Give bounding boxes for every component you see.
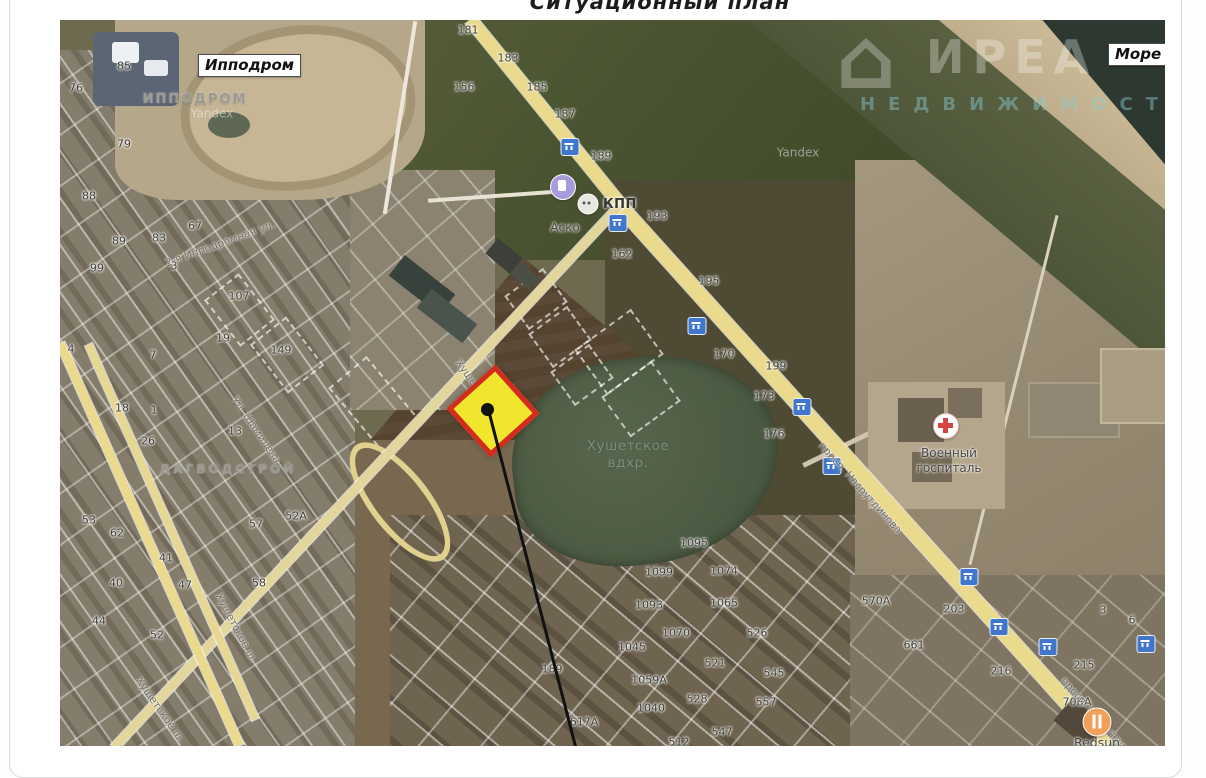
house-number: 216 (991, 665, 1012, 678)
house-number: 1059А (631, 674, 667, 687)
house-number: 215 (1074, 659, 1095, 672)
place-label: Военный госпиталь (917, 446, 982, 476)
route-shield-icon (1137, 635, 1156, 653)
house-number: 545 (764, 667, 785, 680)
route-shield-icon (1039, 638, 1058, 656)
house-number: 547 (712, 726, 733, 739)
house-number: 1065 (710, 597, 738, 610)
house-number: 4 (68, 343, 75, 356)
page-title: Ситуационный план (350, 0, 970, 14)
house-number: 44 (92, 615, 106, 628)
hospital-building-2 (948, 388, 982, 418)
street-name-label: 2-я Ипподромная ул. (164, 219, 277, 270)
house-number: 187 (555, 108, 576, 121)
house-number: 76 (69, 82, 83, 95)
house-number: 79 (117, 138, 131, 151)
house-number: 40 (109, 577, 123, 590)
restaurant-icon (1083, 708, 1112, 737)
house-number: 1099 (645, 566, 673, 579)
place-label: ДАГВОДСТРОЙ (160, 463, 297, 478)
house-number: 189 (591, 150, 612, 163)
house-number: 570А (862, 595, 891, 608)
house-number: 162 (612, 248, 633, 261)
house-number: 199 (766, 360, 787, 373)
house-number: 1040 (637, 702, 665, 715)
house-number: 89 (112, 235, 126, 248)
house-number: 617А (570, 716, 599, 729)
place-label: КПП (603, 197, 637, 213)
house-number: 1074 (710, 565, 738, 578)
house-number: 13 (228, 425, 242, 438)
house-number: 6 (1129, 614, 1136, 627)
plot-center-dot (481, 403, 494, 416)
house-number: 1095 (680, 537, 708, 550)
place-label: Хушетское вдхр. (587, 438, 669, 472)
route-shield-icon (609, 214, 628, 232)
house-number: 47 (178, 579, 192, 592)
house-number: 3 (1100, 604, 1107, 617)
house-number: 193 (647, 210, 668, 223)
house-number: 181 (458, 24, 479, 37)
route-shield-icon (990, 618, 1009, 636)
hospital-cross-icon (933, 413, 959, 439)
stadium-roof-2 (144, 60, 168, 76)
house-number: 176 (764, 428, 785, 441)
house-number: 107 (229, 290, 250, 303)
house-number: 149 (271, 344, 292, 357)
compound-walled (1100, 348, 1165, 424)
fuel-station-icon (550, 174, 576, 200)
house-number: 41 (159, 552, 173, 565)
house-number: 7 (150, 349, 157, 362)
situational-plan-map[interactable]: 1811831561851871891931621951701991731768… (60, 20, 1165, 746)
house-number: 83 (152, 232, 166, 245)
house-number: 62 (110, 527, 124, 540)
house-number: 26 (141, 435, 155, 448)
house-number: 1 (151, 404, 158, 417)
place-label: Yandex (191, 107, 234, 122)
house-number: 156 (454, 81, 475, 94)
house-number: 557 (756, 696, 777, 709)
place-label: Redsun (1074, 735, 1120, 746)
route-shield-icon (960, 568, 979, 586)
street-name-label: Хушетское ш. (133, 675, 187, 745)
house-number: 85 (117, 60, 131, 73)
house-number: 528 (687, 693, 708, 706)
house-number: 173 (754, 390, 775, 403)
house-number: 203 (944, 603, 965, 616)
house-number: 526 (747, 627, 768, 640)
house-number: 19 (216, 332, 230, 345)
place-label: Yandex (777, 146, 820, 161)
house-number: 195 (699, 275, 720, 288)
route-shield-icon (561, 138, 580, 156)
house-number: 58 (252, 577, 266, 590)
house-number: 1093 (635, 599, 663, 612)
house-number: 1045 (618, 641, 646, 654)
route-shield-icon (688, 317, 707, 335)
house-number: 18 (115, 402, 129, 415)
house-number: 521 (705, 657, 726, 670)
house-number: 185 (527, 81, 548, 94)
house-number: 1070 (662, 627, 690, 640)
house-number: 170 (714, 348, 735, 361)
house-number: 52 (150, 629, 164, 642)
place-label: Аско (550, 221, 579, 236)
house-number: 57 (249, 518, 263, 531)
house-number: 67 (188, 220, 202, 233)
house-number: 99 (90, 262, 104, 275)
route-shield-icon (793, 398, 812, 416)
house-number: 183 (498, 52, 519, 65)
house-number: 512 (669, 736, 690, 747)
callout-hippodrome: Ипподром (198, 54, 301, 77)
house-number: 661 (904, 639, 925, 652)
checkpoint-icon (578, 194, 599, 215)
house-number: 52А (285, 510, 307, 523)
callout-sea: Море (1108, 43, 1165, 66)
house-number: 88 (82, 190, 96, 203)
house-number: 53 (82, 514, 96, 527)
